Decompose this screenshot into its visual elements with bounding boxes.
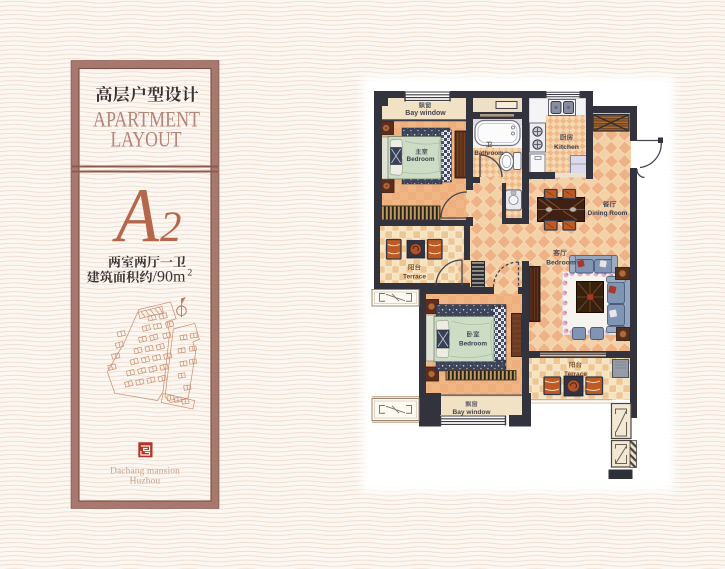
svg-text:Bay window: Bay window	[452, 409, 491, 416]
svg-text:Huzhou: Huzhou	[130, 477, 161, 487]
svg-text:A: A	[111, 172, 159, 258]
svg-text:2: 2	[188, 268, 193, 278]
svg-text:Bedroom: Bedroom	[406, 156, 434, 163]
svg-text:Kitchen: Kitchen	[554, 144, 579, 151]
svg-text:Terrace: Terrace	[564, 371, 587, 378]
svg-text:/90m: /90m	[153, 269, 186, 286]
svg-text:Dachang mansion: Dachang mansion	[110, 466, 180, 476]
svg-text:Bedroom: Bedroom	[459, 341, 487, 348]
svg-text:Bathroom: Bathroom	[474, 150, 504, 157]
svg-text:2: 2	[160, 204, 182, 251]
svg-text:Bay window: Bay window	[405, 110, 446, 117]
svg-text:LAYOUT: LAYOUT	[111, 127, 182, 152]
svg-text:Bedroom: Bedroom	[546, 259, 576, 266]
svg-text:Dining Room: Dining Room	[588, 210, 628, 217]
svg-text:Terrace: Terrace	[403, 274, 426, 281]
